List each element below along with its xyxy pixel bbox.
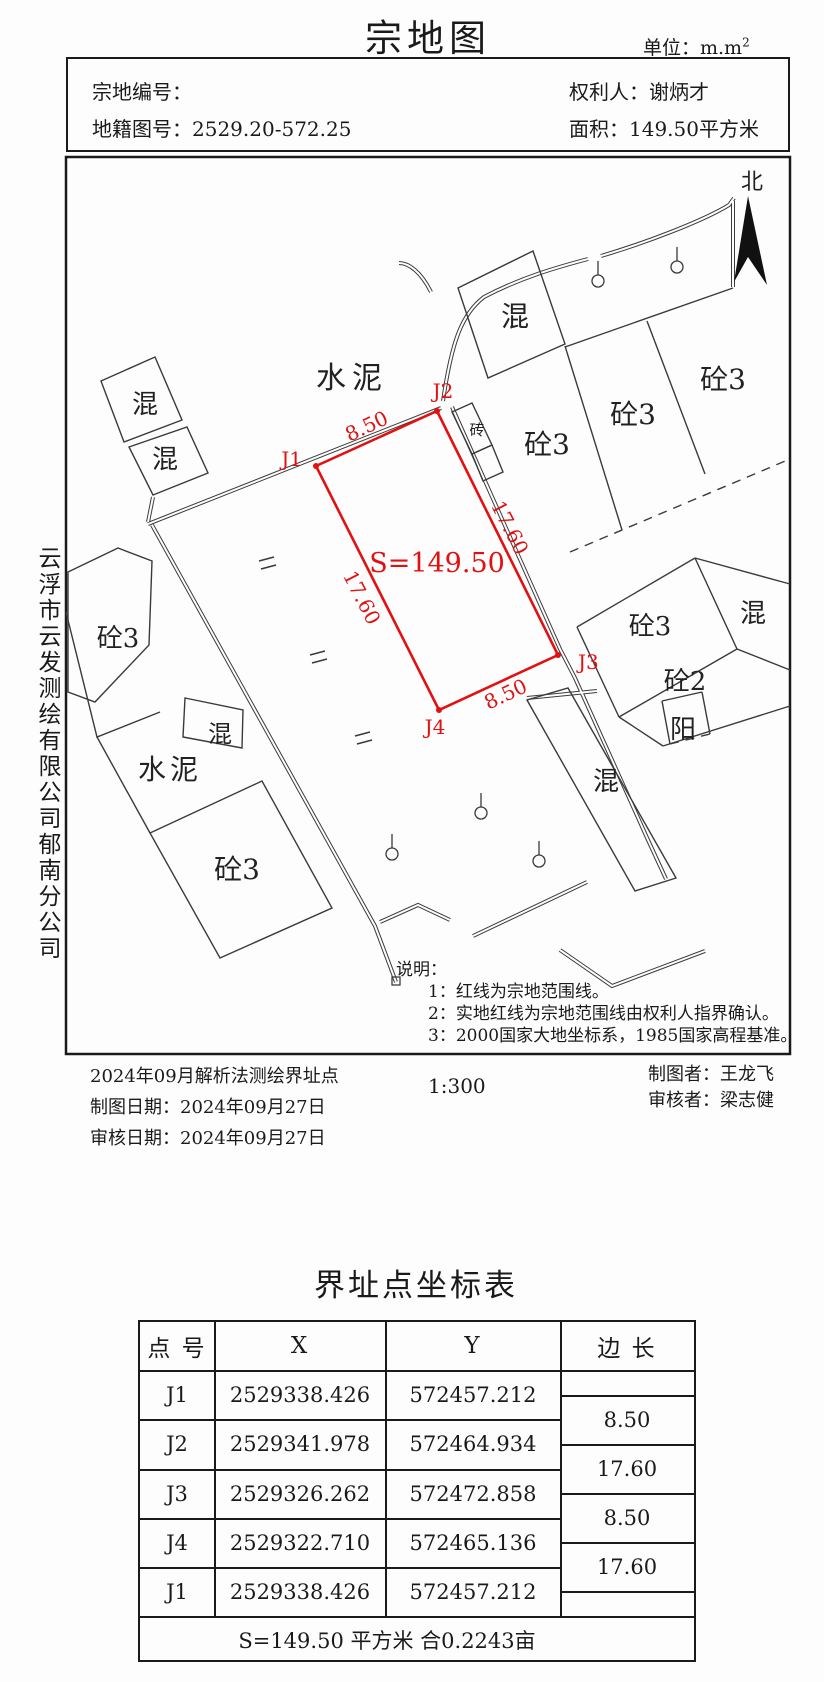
notes-title: 说明： [396,959,797,981]
label-hun-small: 混 [208,720,232,748]
coordinate-table: 点 号 X Y 边 长 J1 2529338.426 572457.212 J2… [138,1320,696,1662]
row1-point-id: J1 [140,1370,214,1419]
cadastral-document-page: 宗地图 单位：m.m2 宗地编号： 地籍图号：2529.20-572.25 权利… [0,0,824,1682]
note-item-3: 3：2000国家大地坐标系，1985国家高程基准。 [428,1025,797,1047]
row3-x: 2529326.262 [214,1469,386,1518]
note-item-2: 2：实地红线为宗地范围线由权利人指界确认。 [428,1003,797,1025]
label-tong3-bottom: 砼3 [214,853,260,886]
edge-hline-5 [560,1591,694,1593]
label-hun-topstrip: 混 [501,300,529,333]
map-frame [66,157,790,1054]
row4-point-id: J4 [140,1518,214,1567]
point-label-j4: J4 [423,715,446,739]
point-label-j3: J3 [576,650,599,674]
point-label-j1: J1 [279,447,302,471]
row4-y: 572465.136 [386,1518,560,1567]
label-tong3-left: 砼3 [97,624,140,654]
building-outlines [66,251,790,958]
edge-cell-3: 8.50 [560,1493,694,1542]
label-cement-top: 水泥 [316,361,388,396]
label-tong2: 砼2 [664,667,707,697]
col-header-y: Y [386,1322,560,1370]
label-hun-left1: 混 [132,390,158,420]
row1-y: 572457.212 [386,1370,560,1419]
label-tong3-a: 砼3 [524,428,570,461]
row4-x: 2529322.710 [214,1518,386,1567]
north-label: 北 [741,170,763,195]
label-hun-right: 混 [740,599,766,629]
row5-x: 2529338.426 [214,1567,386,1616]
edge-cell-1: 8.50 [560,1395,694,1444]
map-scale: 1:300 [428,1074,486,1098]
row3-y: 572472.858 [386,1469,560,1518]
edge-label-bottom: 8.50 [480,674,531,715]
drafter-line: 制图者：王龙飞 [648,1060,774,1086]
row2-y: 572464.934 [386,1419,560,1469]
row2-point-id: J2 [140,1419,214,1469]
label-brick: 砖 [469,421,484,439]
col-header-point: 点 号 [140,1322,214,1370]
row3-point-id: J3 [140,1469,214,1518]
map-notes: 说明： 1：红线为宗地范围线。 2：实地红线为宗地范围线由权利人指界确认。 3：… [396,959,797,1047]
building-labels: 水泥 混 砼3 砼3 砼3 砖 混 混 砼3 混 水泥 砼3 砼3 混 砼2 阳… [97,300,766,886]
label-cement-bottom: 水泥 [138,753,202,786]
label-hun-strip: 混 [593,767,619,797]
edge-hline-0 [560,1370,694,1372]
label-tong3-b: 砼3 [610,398,656,431]
reviewer-line: 审核者：梁志健 [648,1086,774,1112]
north-arrow-icon [734,196,767,285]
col-header-x: X [214,1322,386,1370]
drafting-date-line: 制图日期：2024年09月27日 [90,1093,326,1119]
survey-method-line: 2024年09月解析法测绘界址点 [90,1062,339,1088]
edge-label-top: 8.50 [341,406,392,447]
review-date-line: 审核日期：2024年09月27日 [90,1124,326,1150]
label-tong3-right: 砼3 [629,612,672,642]
point-label-j2: J2 [431,379,454,403]
row1-x: 2529338.426 [214,1370,386,1419]
row2-x: 2529341.978 [214,1419,386,1469]
col-header-edge: 边 长 [560,1322,694,1370]
table-summary: S=149.50 平方米 合0.2243亩 [140,1618,634,1662]
label-hun-left2: 混 [152,445,178,475]
row5-point-id: J1 [140,1567,214,1616]
coordinate-table-title: 界址点坐标表 [314,1260,518,1305]
edge-cell-2: 17.60 [560,1444,694,1493]
parcel-area-label: S=149.50 [369,548,505,579]
note-item-1: 1：红线为宗地范围线。 [428,981,797,1003]
label-yang: 阳 [670,715,696,745]
label-tong3-c: 砼3 [700,363,746,396]
edge-cell-4: 17.60 [560,1542,694,1591]
row5-y: 572457.212 [386,1567,560,1616]
